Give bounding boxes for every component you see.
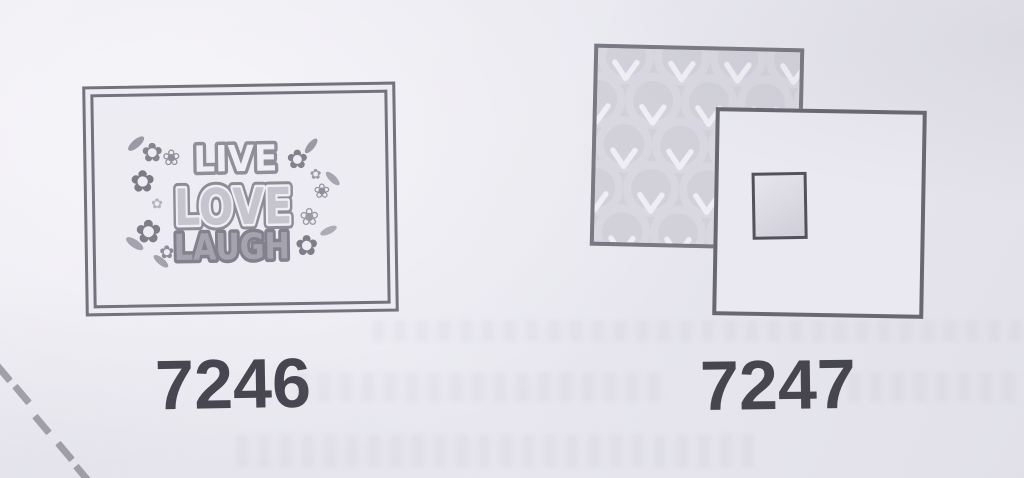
plain-card	[712, 107, 927, 319]
flower-icon: ✿	[130, 164, 156, 199]
flower-icon: ✿	[159, 242, 174, 263]
flower-icon: ❀	[313, 179, 330, 203]
flower-icon: ✿	[151, 196, 163, 212]
product-code-7246: 7246	[149, 348, 316, 421]
product-image-7246: ✿ ❀ ✿ ✿ ✿ ✿ ✿ ✿ ❀ ❀ ✿ LIVE LIVE LOVE LOV…	[82, 82, 399, 317]
cut-dash	[73, 464, 93, 478]
flower-icon: ✿	[286, 145, 308, 175]
live-word: LIVE	[193, 138, 278, 180]
flower-icon: ✿	[135, 212, 162, 250]
flower-icon: ❀	[162, 146, 181, 171]
page-bleed-through	[236, 434, 756, 468]
cut-dash	[32, 414, 52, 435]
dashed-cut-line	[0, 360, 110, 478]
small-window	[752, 172, 808, 240]
cut-dash	[0, 362, 13, 383]
cut-dash	[12, 384, 32, 405]
cut-dash	[55, 441, 75, 462]
scanned-catalog-page: ✿ ❀ ✿ ✿ ✿ ✿ ✿ ✿ ❀ ❀ ✿ LIVE LIVE LOVE LOV…	[0, 0, 1024, 478]
live-love-laugh-art: ✿ ❀ ✿ ✿ ✿ ✿ ✿ ✿ ❀ ❀ ✿ LIVE LIVE LOVE LOV…	[88, 88, 382, 301]
flower-icon: ✿	[295, 229, 319, 262]
page-bleed-through	[848, 372, 1022, 402]
page-bleed-through	[296, 372, 668, 402]
product-code-7247: 7247	[700, 349, 853, 421]
page-bleed-through	[372, 320, 1022, 342]
flower-icon: ❀	[299, 203, 320, 231]
laugh-word: LAUGH	[173, 226, 290, 269]
